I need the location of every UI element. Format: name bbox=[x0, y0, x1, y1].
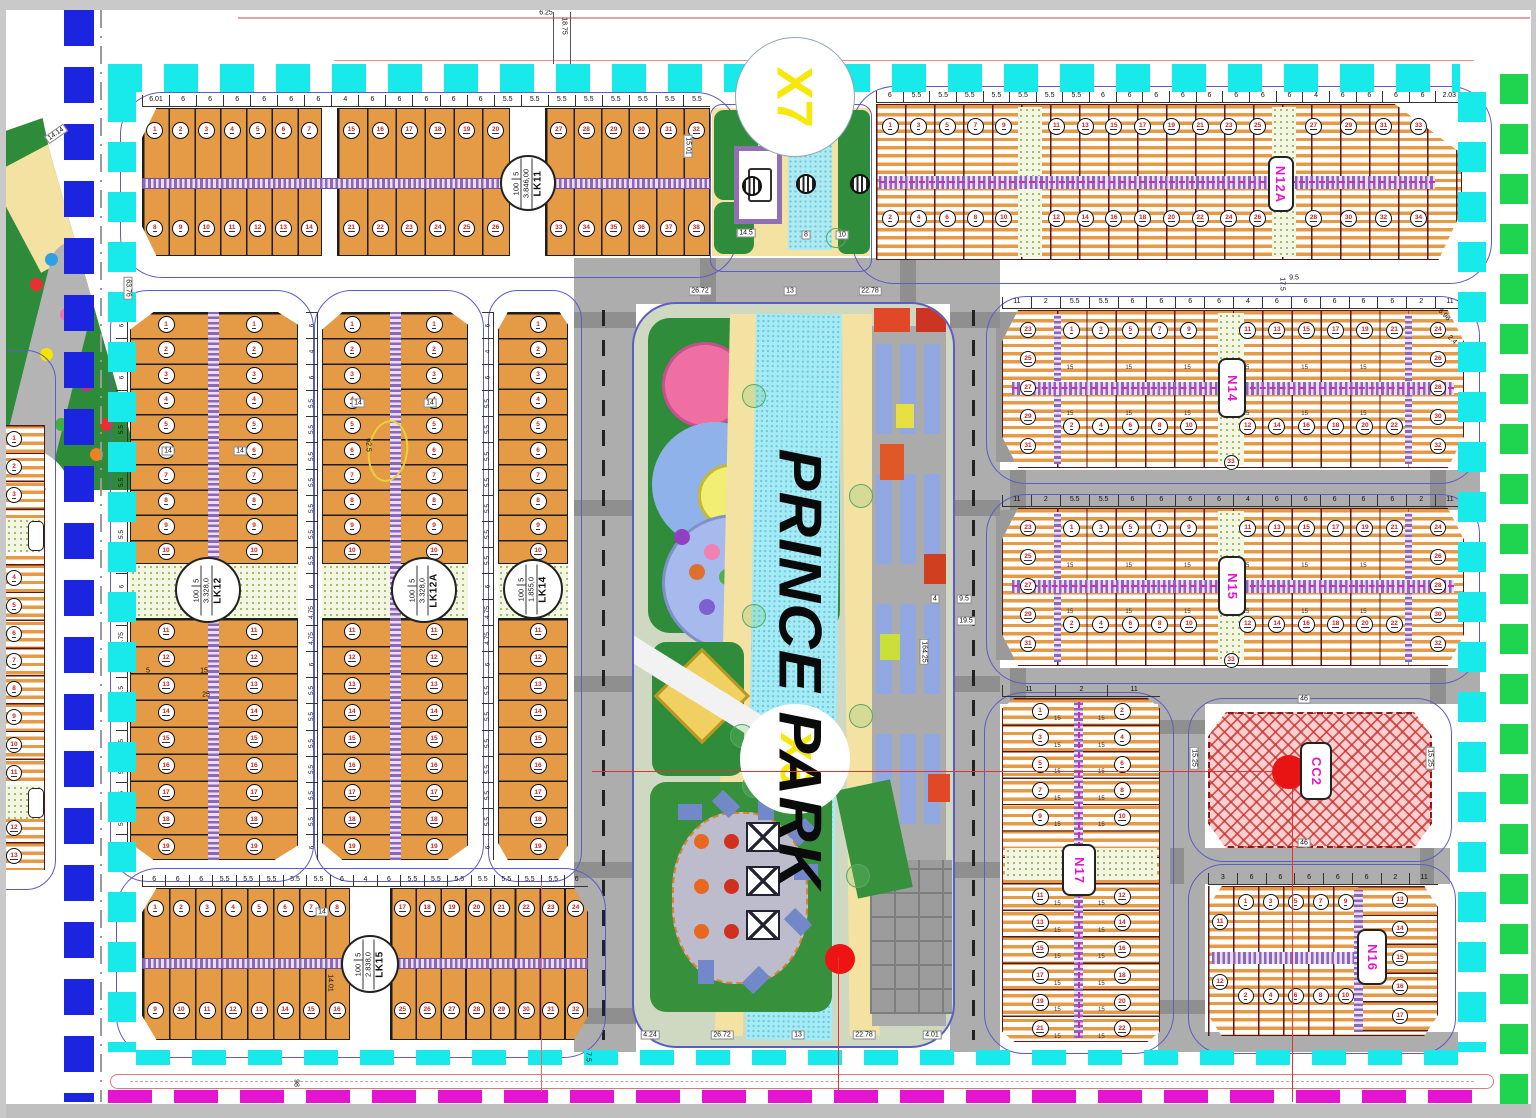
dimension-label: 6 bbox=[482, 364, 494, 390]
lot-circle: 18 bbox=[1327, 616, 1344, 633]
lot-circle: 7 bbox=[301, 122, 318, 139]
lot-circle: 1 bbox=[158, 316, 175, 333]
dimension-label: 5.5 bbox=[548, 95, 575, 107]
lot-circle: 28 bbox=[1305, 210, 1322, 227]
dimension-label: 6 bbox=[482, 312, 494, 338]
lot-circle: 2 bbox=[173, 900, 190, 917]
block-label-lk11: 1005 3.846,00 LK11 bbox=[500, 155, 556, 211]
lot-circle: 16 bbox=[1298, 418, 1315, 435]
lot-circle: 31 bbox=[660, 122, 677, 139]
lot-circle: 24 bbox=[1220, 210, 1237, 227]
lot-circle: 30 bbox=[518, 1002, 535, 1019]
lot-circle: 20 bbox=[1356, 418, 1373, 435]
lot-circle: 13 bbox=[426, 677, 443, 694]
lot-circle: 10 bbox=[344, 543, 361, 560]
lot-depth-label: 15 bbox=[1360, 356, 1372, 364]
dimension-label: 6 bbox=[330, 875, 353, 887]
lot-circle: 8 bbox=[967, 210, 984, 227]
lot-circle: 2 bbox=[1238, 988, 1254, 1004]
lot-circle: 4 bbox=[1092, 418, 1109, 435]
lot-circle: 6 bbox=[530, 442, 547, 459]
block-label-lk11-density: 1005 bbox=[512, 158, 522, 208]
dome-icon bbox=[796, 174, 816, 194]
lot-circle: 15 bbox=[303, 1002, 320, 1019]
dimension-label: 4.75 bbox=[306, 625, 318, 651]
lot-circle: 3 bbox=[6, 487, 22, 503]
tree-icon bbox=[846, 864, 870, 888]
lot-circle: 6 bbox=[1122, 418, 1139, 435]
block-label-lk12-density: 1005 bbox=[192, 565, 202, 615]
red-marker bbox=[825, 944, 855, 974]
lot-circle: 33 bbox=[1224, 455, 1239, 470]
crosswalk bbox=[574, 676, 636, 692]
lot-circle: 26 bbox=[1249, 210, 1266, 227]
dimension-label: 6 bbox=[1291, 297, 1320, 309]
dimension-label: 4 bbox=[1233, 297, 1262, 309]
lot-circle: 17 bbox=[426, 784, 443, 801]
lot-circle: 29 bbox=[605, 122, 622, 139]
red-reference-line bbox=[1292, 772, 1293, 1102]
lot-circle: 3 bbox=[199, 900, 216, 917]
lot-circle: 1 bbox=[1063, 520, 1080, 537]
dimension-label: 5.5 bbox=[903, 91, 930, 103]
dimension-label: 5.5 bbox=[1089, 297, 1118, 309]
dimension-label: 6 bbox=[385, 95, 412, 107]
dimension-label: 11 bbox=[1002, 685, 1055, 697]
dimension-label: 5.5 bbox=[521, 95, 548, 107]
lot-circle: 5 bbox=[344, 417, 361, 434]
park-watermark-text: PRINCE PARK bbox=[766, 449, 835, 890]
lot-circle: 18 bbox=[426, 811, 443, 828]
lot-circle: 12 bbox=[1239, 418, 1256, 435]
dimension-label: 5.5 bbox=[306, 756, 318, 782]
dimension-label: 2 bbox=[1406, 297, 1435, 309]
lot-circle: 19 bbox=[443, 900, 460, 917]
dimension-label: 6 bbox=[169, 95, 196, 107]
lot-circle: 7 bbox=[344, 467, 361, 484]
block-label-lk12a-name: LK12A bbox=[429, 565, 441, 615]
lot-circle: 12 bbox=[530, 650, 547, 667]
dimension-label: 5.5 bbox=[629, 95, 656, 107]
flower-bed bbox=[916, 308, 946, 332]
lot-circle: 22 bbox=[518, 900, 535, 917]
lot-depth-label: 15 bbox=[1098, 1025, 1110, 1033]
lot-circle: 14 bbox=[530, 704, 547, 721]
lot-circle: 30 bbox=[633, 122, 650, 139]
lot-circle: 12 bbox=[158, 650, 175, 667]
dome-icon bbox=[742, 176, 762, 196]
lot-depth-label: 15 bbox=[1098, 707, 1110, 715]
lot-circle: 29 bbox=[1020, 409, 1036, 425]
dimension-label: 5.5 bbox=[494, 875, 517, 887]
lot-circle: 1 bbox=[146, 122, 163, 139]
tree-icon bbox=[742, 604, 766, 628]
lot-circle: 17 bbox=[1392, 1008, 1408, 1024]
lot-circle: 33 bbox=[1224, 653, 1239, 668]
lot-circle: 5 bbox=[530, 417, 547, 434]
dimension-label: 5.5 bbox=[656, 95, 683, 107]
dimension-label: 5.5 bbox=[482, 703, 494, 729]
block-label-n12a: N12A bbox=[1268, 156, 1294, 212]
dimension-label: 6 bbox=[440, 95, 467, 107]
lot-depth-label: 15 bbox=[1054, 760, 1066, 768]
lot-circle: 15 bbox=[158, 731, 175, 748]
dimension-label: 6 bbox=[1249, 91, 1276, 103]
crosswalk bbox=[574, 500, 636, 516]
dimension-row: 366666211 bbox=[1208, 873, 1438, 885]
centerline-dashdot bbox=[100, 10, 102, 1102]
lot-circle: 9 bbox=[1338, 894, 1354, 910]
dimension-col: 6465.55.55.55.55.55.55.564.754.7565.55.5… bbox=[306, 312, 318, 860]
lot-circle: 17 bbox=[394, 900, 411, 917]
lot-depth-label: 15 bbox=[1301, 402, 1313, 410]
block-label-lk12-area: 3.328,0 bbox=[202, 565, 213, 615]
density: 100 bbox=[512, 182, 521, 195]
lot-circle: 12 bbox=[426, 650, 443, 667]
dimension-label: 6 bbox=[1382, 91, 1409, 103]
dimension-label: 11 bbox=[1409, 873, 1438, 885]
lot-circle: 19 bbox=[1032, 994, 1049, 1011]
pavilion-structure bbox=[746, 910, 780, 940]
dimension-label: 5.5 bbox=[482, 469, 494, 495]
lot-depth-label: 15 bbox=[1098, 760, 1110, 768]
lot-circle: 11 bbox=[1032, 888, 1049, 905]
lot-circle: 5 bbox=[251, 900, 268, 917]
dimension-label: 6 bbox=[1204, 495, 1233, 507]
dimension-col: 6465.55.55.55.55.55.55.564.754.7565.55.5… bbox=[482, 312, 494, 860]
dimension-label: 5.5 bbox=[482, 442, 494, 468]
lot-circle: 9 bbox=[6, 709, 22, 725]
block-label-n17: N17 bbox=[1062, 844, 1096, 896]
dimension-label: 6 bbox=[1116, 91, 1143, 103]
lot-circle: 16 bbox=[530, 757, 547, 774]
lot-circle: 1 bbox=[1032, 703, 1049, 720]
dim-extension-line bbox=[570, 12, 571, 64]
lot-circle: 11 bbox=[1239, 520, 1256, 537]
dimension-label: 6 bbox=[1291, 495, 1320, 507]
lot-circle: 6 bbox=[344, 442, 361, 459]
lot-circle: 28 bbox=[468, 1002, 485, 1019]
plaza-strip bbox=[900, 604, 916, 694]
dimension-label: 4.75 bbox=[482, 599, 494, 625]
lot-circle: 25 bbox=[458, 220, 475, 237]
lot-circle: 23 bbox=[542, 900, 559, 917]
lot-circle: 13 bbox=[1077, 118, 1094, 135]
crosswalk bbox=[574, 312, 636, 328]
dimension-label: 5.5 bbox=[212, 875, 235, 887]
lot-circle: 13 bbox=[275, 220, 292, 237]
lot-circle: 23 bbox=[1020, 322, 1036, 338]
block-label-lk14-stack: 1005 1.855,0 LK14 bbox=[517, 564, 550, 614]
dimension-label: 5.5 bbox=[400, 875, 423, 887]
dimension-label: 6 bbox=[189, 875, 212, 887]
lot-circle: 15 bbox=[246, 731, 263, 748]
dimension-label: 6 bbox=[306, 651, 318, 677]
lot-circle: 25 bbox=[394, 1002, 411, 1019]
plaza-strip bbox=[924, 344, 940, 434]
lot-depth-label: 15 bbox=[1125, 356, 1137, 364]
lot-circle: 13 bbox=[1032, 914, 1049, 931]
lot-circle: 17 bbox=[344, 784, 361, 801]
dimension-label: 6 bbox=[196, 95, 223, 107]
mini-label-box bbox=[28, 788, 44, 818]
density: 100 bbox=[354, 963, 363, 976]
lot-circle: 7 bbox=[1032, 782, 1049, 799]
lot-circle: 17 bbox=[530, 784, 547, 801]
dimension-label: 6 bbox=[142, 875, 165, 887]
dimension-label: 6 bbox=[377, 875, 400, 887]
lot-circle: 12 bbox=[344, 650, 361, 667]
lot-circle: 3 bbox=[530, 367, 547, 384]
lot-depth-label: 15 bbox=[1098, 945, 1110, 953]
lot-circle: 19 bbox=[1356, 520, 1373, 537]
lot-depth-label: 15 bbox=[1125, 554, 1137, 562]
floors: 5 bbox=[517, 577, 526, 581]
lot-circle: 8 bbox=[530, 493, 547, 510]
planting bbox=[30, 278, 43, 291]
lot-depth-label: 15 bbox=[1184, 356, 1196, 364]
lot-circle: 18 bbox=[246, 811, 263, 828]
lot-circle: 9 bbox=[158, 518, 175, 535]
lot-circle: 10 bbox=[1180, 418, 1197, 435]
lot-circle: 21 bbox=[1386, 322, 1403, 339]
block-label-cc2: CC2 bbox=[1300, 742, 1332, 800]
lot-circle: 4 bbox=[246, 392, 263, 409]
dimension-label: 5.5 bbox=[929, 91, 956, 103]
red-reference-line bbox=[541, 882, 542, 1092]
dimension-label: 5.5 bbox=[482, 416, 494, 442]
block-label-lk12: 1005 3.328,0 LK12 bbox=[175, 557, 241, 623]
lot-circle: 30 bbox=[1430, 607, 1446, 623]
lot-depth-label: 15 bbox=[1054, 787, 1066, 795]
lot-circle: 18 bbox=[419, 900, 436, 917]
dimension-label: 6 bbox=[412, 95, 439, 107]
lot-circle: 9 bbox=[1180, 520, 1197, 537]
lot-circle: 14 bbox=[277, 1002, 294, 1019]
lot-circle: 3 bbox=[1092, 322, 1109, 339]
dimension-label: 6 bbox=[1169, 91, 1196, 103]
playground-dot bbox=[699, 599, 715, 615]
lot-circle: 13 bbox=[158, 677, 175, 694]
lot-circle: 12 bbox=[1114, 888, 1131, 905]
dimension-label: 5.5 bbox=[1089, 495, 1118, 507]
dimension-label: 2 bbox=[1406, 495, 1435, 507]
lot-circle: 5 bbox=[426, 417, 443, 434]
dimension-label: 5.5 bbox=[306, 547, 318, 573]
dimension-label: 4 bbox=[306, 338, 318, 364]
page-frame-left bbox=[0, 0, 6, 1118]
median-hatch bbox=[142, 178, 710, 189]
lot-circle: 13 bbox=[1268, 322, 1285, 339]
lot-circle: 10 bbox=[1338, 988, 1354, 1004]
block-label-lk12-name: LK12 bbox=[213, 565, 225, 615]
lot-circle: 16 bbox=[158, 757, 175, 774]
lot-circle: 13 bbox=[1268, 520, 1285, 537]
dimension-label: 6 bbox=[1222, 91, 1249, 103]
lot-depth-label: 15 bbox=[1067, 356, 1079, 364]
lot-circle: 11 bbox=[199, 1002, 216, 1019]
lot-circle: 23 bbox=[1020, 520, 1036, 536]
lot-circle: 27 bbox=[1305, 118, 1322, 135]
dimension-label: 6 bbox=[250, 95, 277, 107]
lot-circle: 14 bbox=[158, 704, 175, 721]
dimension-label: 5.5 bbox=[482, 521, 494, 547]
block-label-n16: N16 bbox=[1357, 929, 1387, 985]
red-guide-line bbox=[334, 60, 1474, 61]
lot-circle: 1 bbox=[1238, 894, 1254, 910]
lot-circle: 18 bbox=[344, 811, 361, 828]
lot-circle: 14 bbox=[344, 704, 361, 721]
lot-circle: 9 bbox=[147, 1002, 164, 1019]
lot-circle: 12 bbox=[1048, 210, 1065, 227]
dimension-row: 65.55.55.55.55.55.55.566666666466662.03 bbox=[876, 91, 1462, 103]
planting bbox=[45, 253, 58, 266]
dimension-label: 6 bbox=[1349, 297, 1378, 309]
boundary-cyan-right bbox=[1458, 92, 1486, 1052]
lot-circle: 13 bbox=[530, 677, 547, 694]
lot-circle: 16 bbox=[372, 122, 389, 139]
dimension-label: 6 bbox=[1329, 91, 1356, 103]
central-park: X6 PRINCE PARK bbox=[632, 302, 955, 1048]
lot-circle: 16 bbox=[1298, 616, 1315, 633]
lot-depth-label: 15 bbox=[1054, 919, 1066, 927]
lot-circle: 9 bbox=[1180, 322, 1197, 339]
block-label-lk15: 1005 2.838,0 LK15 bbox=[341, 935, 399, 993]
lot-circle: 1 bbox=[147, 900, 164, 917]
lot-circle: 2 bbox=[1063, 418, 1080, 435]
lot-circle: 11 bbox=[224, 220, 241, 237]
dimension-label: 5.5 bbox=[259, 875, 282, 887]
dimension-label: 5.5 bbox=[306, 442, 318, 468]
lot-depth-label: 15 bbox=[1360, 554, 1372, 562]
lot-circle: 10 bbox=[198, 220, 215, 237]
lot-circle: 8 bbox=[1114, 782, 1131, 799]
boundary-magenta-dashed bbox=[108, 1090, 1490, 1103]
dimension-label: 6 bbox=[1204, 297, 1233, 309]
lot-circle: 2 bbox=[158, 341, 175, 358]
lot-circle: 19 bbox=[344, 838, 361, 855]
lot-circle: 17 bbox=[246, 784, 263, 801]
lot-circle: 13 bbox=[6, 848, 22, 864]
lot-circle: 15 bbox=[343, 122, 360, 139]
plaza-strip bbox=[900, 734, 916, 824]
lot-circle: 9 bbox=[172, 220, 189, 237]
lot-circle: 17 bbox=[1327, 322, 1344, 339]
lot-circle: 10 bbox=[173, 1002, 190, 1019]
lot-depth-label: 15 bbox=[1184, 402, 1196, 410]
red-reference-line bbox=[592, 771, 1294, 772]
lot-circle: 21 bbox=[1192, 118, 1209, 135]
lot-depth-label: 15 bbox=[1054, 707, 1066, 715]
lot-circle: 5 bbox=[6, 598, 22, 614]
dimension-label: 5.5 bbox=[1060, 495, 1089, 507]
lot-circle: 9 bbox=[530, 518, 547, 535]
dimension-label: 6 bbox=[1118, 297, 1147, 309]
dimension-label: 6 bbox=[1409, 91, 1436, 103]
lot-circle: 2 bbox=[172, 122, 189, 139]
lot-circle: 6 bbox=[6, 626, 22, 642]
bench bbox=[678, 804, 702, 820]
dimension-label: 5.5 bbox=[306, 521, 318, 547]
block-label-lk15-name: LK15 bbox=[375, 939, 387, 989]
lot-circle: 5 bbox=[1122, 322, 1139, 339]
lot-circle: 15 bbox=[426, 731, 443, 748]
lot-depth-label: 15 bbox=[1360, 600, 1372, 608]
lot-depth-label: 15 bbox=[1184, 554, 1196, 562]
lot-circle: 3 bbox=[1263, 894, 1279, 910]
dimension-label: 5.5 bbox=[306, 677, 318, 703]
lot-circle: 11 bbox=[246, 623, 263, 640]
dimension-label: 6 bbox=[1146, 297, 1175, 309]
lot-circle: 3 bbox=[910, 118, 927, 135]
dimension-label: 5.5 bbox=[306, 495, 318, 521]
lot-depth-label: 15 bbox=[1301, 356, 1313, 364]
dimension-label: 6 bbox=[1142, 91, 1169, 103]
lot-circle: 8 bbox=[1313, 988, 1329, 1004]
lot-circle: 20 bbox=[487, 122, 504, 139]
lot-circle: 15 bbox=[1105, 118, 1122, 135]
dimension-label: 11 bbox=[1002, 495, 1031, 507]
lot-circle: 15 bbox=[1298, 322, 1315, 339]
lot-circle: 18 bbox=[1327, 418, 1344, 435]
lot-circle: 12 bbox=[249, 220, 266, 237]
lot-circle: 38 bbox=[688, 220, 705, 237]
dimension-label: 5.5 bbox=[602, 95, 629, 107]
dimension-label: 6 bbox=[1146, 495, 1175, 507]
lot-circle: 29 bbox=[493, 1002, 510, 1019]
lot-circle: 8 bbox=[246, 493, 263, 510]
block-label-lk11-area: 3.846,00 bbox=[522, 158, 533, 208]
dimension-label: 6 bbox=[1356, 91, 1383, 103]
page-frame-right bbox=[1531, 0, 1536, 1118]
lot-circle: 33 bbox=[550, 220, 567, 237]
lot-circle: 4 bbox=[6, 570, 22, 586]
lot-circle: 1 bbox=[426, 316, 443, 333]
south-road-centerline bbox=[130, 1081, 1474, 1082]
lot-depth-label: 15 bbox=[1098, 972, 1110, 980]
lot-circle: 28 bbox=[1430, 380, 1446, 396]
floors: 5 bbox=[512, 171, 521, 175]
plaza-strip bbox=[900, 474, 916, 564]
dimension-label: 6 bbox=[1262, 495, 1291, 507]
dimension-label: 5.5 bbox=[1036, 91, 1063, 103]
dimension-label: 5.5 bbox=[1009, 91, 1036, 103]
dimension-label: 11 bbox=[1107, 685, 1160, 697]
lot-circle: 24 bbox=[429, 220, 446, 237]
lot-circle: 25 bbox=[1020, 351, 1036, 367]
dimension-label: 6 bbox=[306, 312, 318, 338]
lot-circle: 19 bbox=[1356, 322, 1373, 339]
lot-circle: 36 bbox=[633, 220, 650, 237]
block-label-n15-text: N15 bbox=[1225, 573, 1240, 600]
lot-circle: 11 bbox=[158, 623, 175, 640]
lot-depth-label: 15 bbox=[1125, 600, 1137, 608]
playground-dot bbox=[724, 879, 739, 894]
dimension-label: 5.5 bbox=[956, 91, 983, 103]
lot-circle: 8 bbox=[146, 220, 163, 237]
flower-bed bbox=[928, 774, 950, 802]
dim-extension-line bbox=[553, 12, 554, 64]
dimension-label: 6 bbox=[1237, 873, 1266, 885]
playground-dot bbox=[694, 879, 709, 894]
dimension-label: 6 bbox=[1196, 91, 1223, 103]
lot-circle: 7 bbox=[1313, 894, 1329, 910]
flower-bed bbox=[874, 308, 910, 332]
dimension-label: 6 bbox=[304, 95, 331, 107]
dimension-label: 6 bbox=[1320, 297, 1349, 309]
lot-circle: 7 bbox=[1151, 322, 1168, 339]
lot-circle: 3 bbox=[1092, 520, 1109, 537]
